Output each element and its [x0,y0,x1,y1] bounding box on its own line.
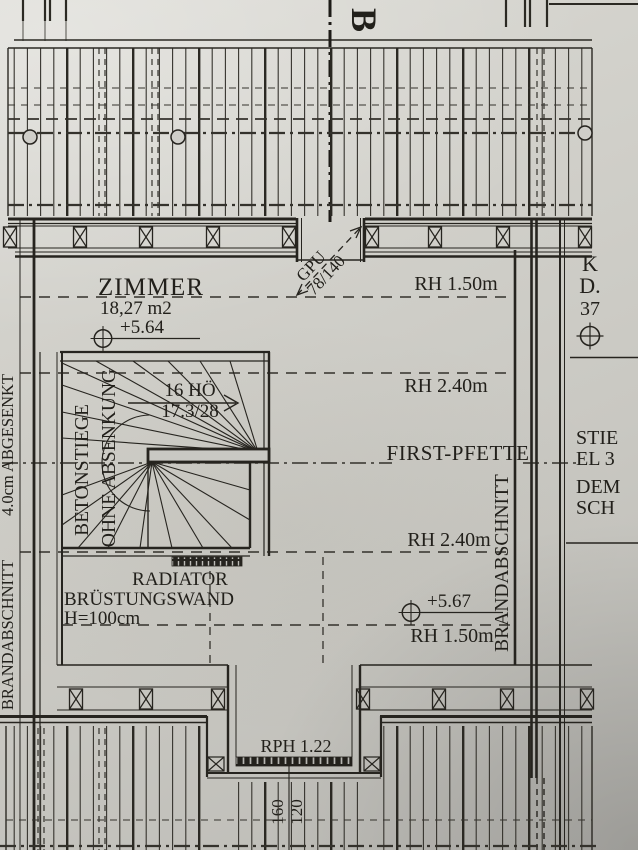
bottom-wall-blocking [70,689,594,709]
height-top: RH 1.50m [414,273,498,295]
dormer-parapet-height: RPH 1.22 [260,736,331,756]
window-sill-symbol [236,757,352,766]
parapet-height: H=100cm [64,608,140,629]
fire-compartment-left: BRANDABSCHNITT [0,560,17,710]
room-name: ZIMMER [98,274,204,301]
right-margin: K D. 37 STIE EL 3 DEM SCH [566,251,638,543]
radiator-label: RADIATOR [132,569,228,590]
margin-note-3: DEM [576,476,621,498]
section-marker-label: B [344,8,384,32]
room-area: 18,27 m2 [100,298,172,319]
level-marker-icon [91,326,116,351]
ridge-purlin-label: FIRST-PFETTE [387,441,530,465]
lowered-ceiling-note: 4.0cm ABGESENKT [0,374,17,516]
room-level-upper: +5.64 [120,317,164,338]
radiator-area: RADIATOR BRÜSTUNGSWAND H=100cm [64,557,242,629]
left-margin-labels: 4.0cm ABGESENKT BRANDABSCHNITT [0,374,17,710]
radiator-symbol [172,557,242,566]
parapet-label: BRÜSTUNGSWAND [64,589,234,610]
height-lower-mid: RH 2.40m [407,529,491,551]
margin-note-1: STIE [576,427,618,449]
neighbor-label-num: 37 [580,298,600,320]
roof-band-top [8,48,592,216]
margin-note-2: EL 3 [576,448,615,470]
stair-type-line2: OHNE ABSENKUNG [99,369,120,547]
stair-riser-tread: 17.3/28 [161,401,219,422]
level-marker-icon [399,600,424,625]
height-upper-mid: RH 2.40m [404,375,488,397]
neighbor-label-d: D. [579,273,600,298]
floorplan-sheet: B [0,0,638,850]
roof-window-niche: GPU 78/140 [292,218,364,299]
top-wall [8,219,592,257]
height-bottom: RH 1.50m [410,625,494,647]
room-level-lower: +5.67 [427,591,471,612]
stair-type-line1: BETONSTIEGE [72,404,93,536]
level-marker-icon [577,323,604,350]
floorplan-drawing: B [0,0,638,850]
fire-compartment-right: BRANDABSCHNITT [492,474,513,652]
stair-steps: 16 HÖ [164,380,215,401]
top-margin [14,0,638,41]
margin-note-4: SCH [576,497,615,519]
